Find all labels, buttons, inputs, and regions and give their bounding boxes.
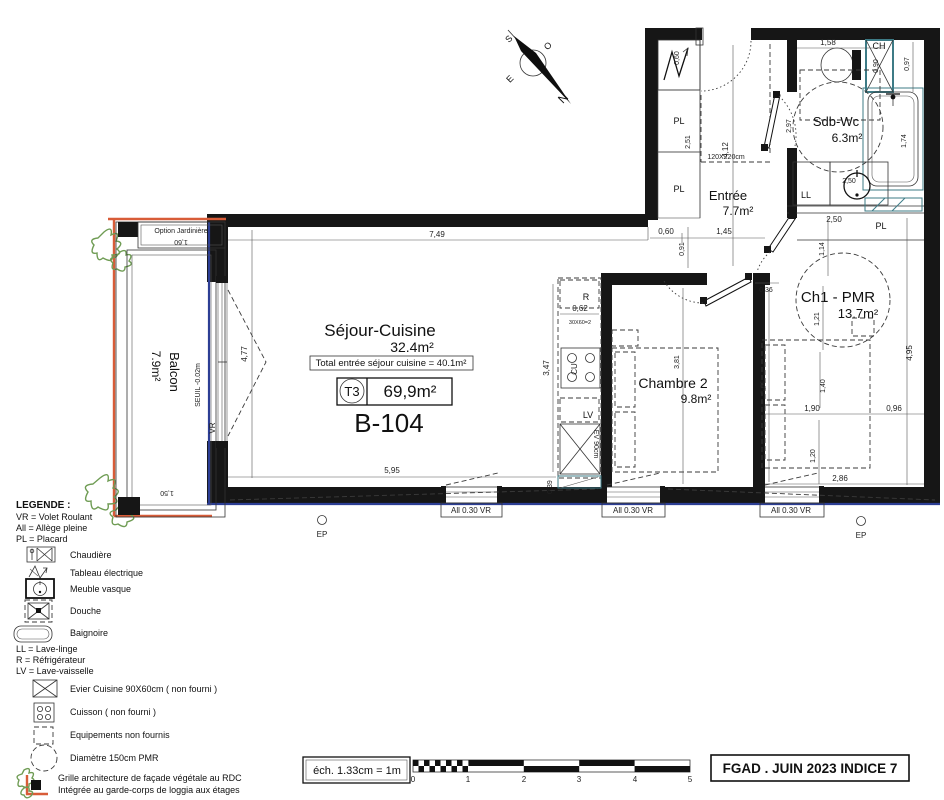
bathtub-legend-icon (14, 626, 52, 642)
legend-cuisson: Cuisson ( non fourni ) (70, 707, 156, 717)
ep-label: EP (856, 531, 867, 540)
dim-150: 1,50 (160, 489, 174, 496)
bathtub-icon (863, 88, 923, 190)
total-area: 69,9m² (384, 382, 437, 401)
scale-tick-3: 3 (577, 775, 582, 784)
dim-036: 0,36 (759, 287, 773, 294)
doc-ref: FGAD . JUIN 2023 INDICE 7 (723, 761, 898, 776)
hob-icon: CU (561, 348, 600, 388)
dishwasher-label: LV (583, 410, 593, 420)
balcony-area: 7.9m² (149, 351, 163, 382)
vegetation-sketch (85, 229, 133, 526)
ep-label: EP (317, 530, 328, 539)
compass-north: N (555, 90, 571, 106)
window-label: All 0.30 VR (771, 506, 811, 515)
dim-120: 1,20 (810, 449, 817, 463)
vr-label: VR (208, 422, 217, 433)
dim-160: 1,60 (174, 238, 188, 245)
scale-tick-2: 2 (522, 775, 527, 784)
legend: LEGENDE : VR = Volet Roulant All = Allèg… (14, 500, 242, 798)
scale-tick-4: 4 (633, 775, 638, 784)
dim-096: 0,96 (886, 404, 902, 413)
vanity-legend-icon (26, 579, 54, 598)
ch2-zone: Chambre 2 9.8m² (612, 273, 752, 472)
window-sejour: All 0.30 VR (441, 473, 502, 517)
dim-097: 0,97 (904, 57, 911, 71)
dim-250a: 2,50 (842, 178, 856, 185)
dim-412: 4,12 (721, 142, 730, 158)
dim-190: 1,90 (804, 404, 820, 413)
dim-121: 1,21 (814, 312, 821, 326)
window-label: All 0.30 VR (613, 506, 653, 515)
hob-note: 30X60=2 (569, 320, 591, 326)
ch1-door (757, 212, 796, 272)
dim-477: 4,77 (240, 346, 249, 362)
sink-label: EV 90cm (592, 430, 599, 459)
ch2-area: 9.8m² (681, 392, 712, 406)
scale-bar: 0 1 2 3 4 5 (411, 760, 693, 784)
boiler-label: CH (873, 41, 886, 51)
dim-381a: 3,81 (674, 355, 681, 369)
legend-pmr: Diamètre 150cm PMR (70, 753, 159, 763)
total-note: Total entrée séjour cuisine = 40.1m² (316, 358, 467, 369)
scale-label: éch. 1.33cm = 1m (313, 765, 401, 777)
ep-downpipe-right: EP (856, 517, 867, 541)
dim-251: 2,51 (685, 135, 692, 149)
seuil-label: SEUIL -0.02m (195, 363, 202, 407)
legend-equipements: Equipements non fournis (70, 730, 170, 740)
floorplan-canvas: S O E N (0, 0, 944, 800)
ch1-area: 13.7m² (838, 306, 879, 321)
shower-legend-icon (25, 600, 52, 622)
legend-abbr-pl: PL = Placard (16, 534, 67, 544)
legend-grille-2: Intégrée au garde-corps de loggia aux ét… (58, 785, 240, 795)
dim-347: 3,47 (542, 360, 551, 376)
balcony-name: Balcon (167, 352, 182, 392)
title-block: FGAD . JUIN 2023 INDICE 7 (711, 755, 909, 781)
type-label: T3 (344, 384, 359, 399)
legend-abbr-r: R = Réfrigérateur (16, 655, 85, 665)
dim-158: 1,58 (820, 38, 836, 47)
legend-grille-1: Grille architecture de façade végétale a… (58, 773, 242, 783)
structural-walls (207, 28, 940, 503)
dim-297: 2,97 (786, 119, 793, 133)
legend-vasque: Meuble vasque (70, 584, 131, 594)
boiler-legend-icon (27, 547, 55, 562)
scale-tick-1: 1 (466, 775, 471, 784)
legend-tableau: Tableau électrique (70, 568, 143, 578)
hob-legend-icon (34, 703, 54, 722)
legend-abbr-lv: LV = Lave-vaisselle (16, 666, 94, 676)
compass-west: O (542, 40, 554, 52)
compass-rose: S O E N (503, 30, 571, 106)
scale-tick-0: 0 (411, 775, 416, 784)
dim-495: 4,95 (905, 345, 914, 361)
scale-box: éch. 1.33cm = 1m (303, 757, 410, 783)
legend-abbr-vr: VR = Volet Roulant (16, 512, 93, 522)
fridge-label: R (583, 292, 590, 302)
option-jardiniere-label: Option Jardinière (154, 228, 207, 235)
dim-595: 5,95 (384, 466, 400, 475)
scale-tick-5: 5 (688, 775, 693, 784)
dim-749: 7,49 (429, 230, 445, 239)
vanity-icon (830, 162, 888, 205)
floorplan-sheet: S O E N (0, 0, 944, 800)
dim-039: 0,39 (547, 480, 554, 494)
sejour-name: Séjour-Cuisine (324, 321, 436, 340)
compass-east: E (504, 73, 515, 84)
dim-060b: 0,60 (674, 51, 681, 65)
legend-abbr-all: All = Allège pleine (16, 523, 87, 533)
kitchen-strip: R 0,62 30X60=2 CU LV EV 90cm (558, 278, 601, 488)
dim-091: 0,91 (679, 242, 686, 256)
placard-label: PL (673, 184, 684, 194)
sejour-area: 32.4m² (390, 339, 434, 355)
dim-174: 1,74 (901, 134, 908, 148)
dim-060: 0,60 (658, 227, 674, 236)
sink-legend-icon (33, 680, 57, 697)
ep-downpipe-left: EP (317, 516, 328, 540)
electrical-legend-icon (29, 566, 47, 578)
legend-chaudiere: Chaudière (70, 550, 112, 560)
dim-250b: 2,50 (826, 215, 842, 224)
entree-area: 7.7m² (723, 204, 754, 218)
placard-label: PL (673, 116, 684, 126)
toilet-icon (821, 48, 861, 82)
grille-legend-icon (17, 769, 48, 798)
sejour-labels: Séjour-Cuisine 32.4m² Total entrée séjou… (310, 321, 473, 438)
sdb-name: Sdb-Wc (813, 114, 860, 129)
ch2-name: Chambre 2 (638, 375, 707, 391)
hob-label: CU (570, 363, 579, 375)
facade-lines (108, 219, 940, 516)
pmr-legend-icon (31, 745, 57, 771)
legend-title: LEGENDE : (16, 500, 70, 511)
ch1-name: Ch1 - PMR (801, 289, 875, 306)
sink-icon: EV 90cm (560, 424, 600, 474)
dim-090: 0,90 (873, 59, 880, 73)
type-badge: T3 69,9m² (337, 378, 452, 405)
legend-abbr-ll: LL = Lave-linge (16, 644, 77, 654)
equipment-legend-icon (34, 727, 53, 744)
dim-140: 1,40 (820, 379, 827, 393)
window-label: All 0.30 VR (451, 506, 491, 515)
dim-145: 1,45 (716, 227, 732, 236)
legend-evier: Evier Cuisine 90X60cm ( non fourni ) (70, 684, 217, 694)
unit-code: B-104 (354, 408, 423, 438)
washer-label: LL (801, 190, 811, 200)
dimension-lines: 7,49 4,77 5,95 3,47 0,39 0,60 1,45 0,91 … (228, 38, 924, 494)
washer-icon: LL (793, 162, 830, 205)
sdb-area: 6.3m² (832, 131, 863, 145)
dim-286: 2,86 (832, 474, 848, 483)
ch1-bed (762, 318, 874, 468)
legend-douche: Douche (70, 606, 101, 616)
dim-381b: 3,81 (760, 380, 767, 394)
placard-label: PL (875, 221, 886, 231)
dim-114: 1,14 (819, 242, 826, 256)
dim-062: 0,62 (572, 304, 588, 313)
entree-name: Entrée (709, 188, 747, 203)
legend-baignoire: Baignoire (70, 628, 108, 638)
